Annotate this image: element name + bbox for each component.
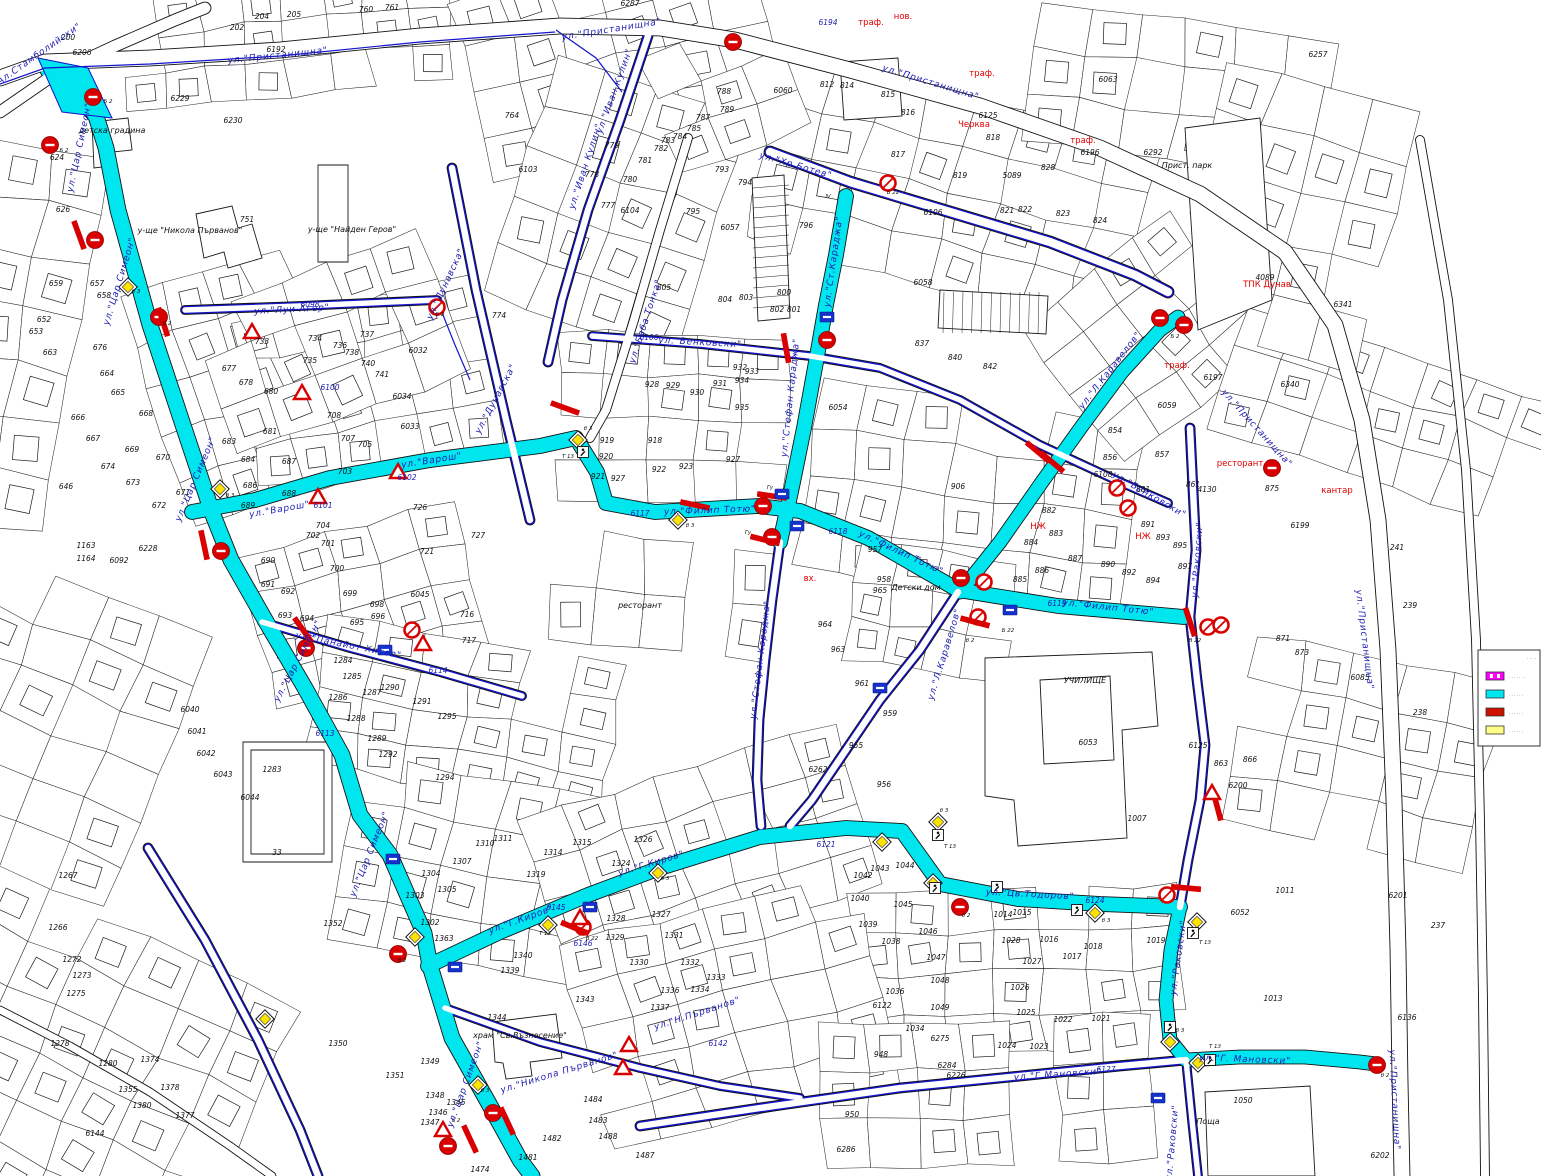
parcel-number-label: 678 [239,378,254,387]
parcel-number-label: 1337 [650,1003,669,1012]
parcel-number-label: 787 [696,113,711,122]
parcel-number-label: 886 [1035,566,1050,575]
legend-item-label: · · · · · · [1509,729,1523,734]
building-outline [1205,1086,1315,1176]
building-outline [857,629,877,649]
red-note-label: Черква [958,120,990,130]
parcel-number-label: 1333 [706,973,725,982]
building-outline [1352,716,1379,742]
building-outline [956,511,979,534]
parcel-number-label: 933 [745,367,760,376]
parcel-number-label: 659 [49,279,64,288]
parcel-number-label: 804 [718,295,733,304]
parcel-number-label: 927 [611,474,626,483]
parcel-number-label: 6125 [978,111,997,120]
building-outline [911,904,934,924]
parcel-number-label: 779 [605,141,620,150]
parcel-number-label: 1332 [680,958,699,967]
parcel-number-label: 1304 [421,869,440,878]
parcel-number-label: 6144 [85,1129,104,1138]
building-outline [1103,23,1126,45]
parcel-number-label: 1280 [98,1059,117,1068]
parcel-outline [590,588,645,650]
parcel-number-label: 793 [715,165,730,174]
parcel-number-label: 667 [86,434,101,443]
building-outline [860,594,881,615]
parcel-number-label: 664 [100,369,115,378]
parcel-number-label: 684 [241,455,256,464]
parcel-number-label: 1307 [452,857,471,866]
parcel-number-label: 6092 [109,556,128,565]
parcel-number-label: 1278 [50,1039,69,1048]
stop-sign-icon [725,34,742,51]
parcel-number-label: 703 [338,467,353,476]
stop-sign-icon [755,498,772,515]
parcel-number-label: 202 [230,23,245,32]
building-outline [730,953,756,976]
parcel-number-label: 6125 [1188,741,1207,750]
parcel-number-label: 760 [359,5,374,14]
sign-code-label: Б 2 [59,148,69,154]
parcel-number-label: 1021 [1091,1014,1110,1023]
ref-number-label: 6194 [818,18,837,27]
parcel-number-label: 692 [281,587,296,596]
parcel-number-label: 673 [126,478,141,487]
sign-code-label: Гу [745,530,752,536]
parcel-number-label: 652 [37,315,52,324]
parcel-number-label: 1294 [435,773,454,782]
parcel-number-label: 780 [623,175,638,184]
parcel-number-label: 928 [645,380,660,389]
parcel-number-label: 717 [462,636,477,645]
parcel-number-label: 1047 [926,953,945,962]
parcel-number-label: 895 [1173,541,1188,550]
parcel-number-label: 961 [855,679,869,688]
parcel-number-label: 6041 [187,727,206,736]
red-note-label: нов. [894,12,912,22]
parcel-number-label: 1343 [575,995,594,1004]
parcel-number-label: 815 [881,90,896,99]
building-outline [575,948,601,971]
parcel-number-label: 686 [243,481,258,490]
parcel-number-label: 800 [777,288,792,297]
ref-number-label: 6102 [397,473,416,482]
no-entry-sign-icon [977,575,992,590]
parcel-number-label: 6044 [240,793,259,802]
parcel-number-label: 6054 [828,403,847,412]
parcel-number-label: 816 [901,108,916,117]
parcel-number-label: 1326 [633,835,652,844]
sign-code-label: Т 13 [539,931,552,937]
crossing-sign-icon [933,830,944,841]
building-outline [1304,705,1329,729]
parcel-number-label: 929 [666,381,681,390]
parcel-number-label: 1017 [1062,952,1081,961]
parcel-number-label: 796 [799,221,814,230]
parcel-number-label: 241 [1390,543,1404,552]
parcel-number-label: 777 [601,201,616,210]
parcel-number-label: 818 [986,133,1001,142]
city-cadastral-map: 2006206202204205619262296230751624626659… [0,0,1541,1176]
parcel-number-label: 1311 [493,834,512,843]
sign-code-label: б 3 [132,289,141,295]
parcel-number-label: 1164 [76,554,95,563]
info-sign-icon [583,902,597,912]
parcel-number-label: 955 [849,741,864,750]
building-outline [259,73,278,91]
parcel-number-label: 204 [255,12,270,21]
parcel-number-label: 738 [345,348,360,357]
parcel-number-label: 883 [1049,529,1064,538]
parcel-number-label: 921 [591,472,605,481]
parcel-number-label: 922 [652,465,667,474]
parcel-number-label: 837 [915,339,930,348]
parcel-number-label: 866 [1243,755,1258,764]
parcel-number-label: 965 [873,586,888,595]
building-outline [1009,1021,1033,1043]
parcel-outline [204,62,248,104]
building-outline [1067,1028,1091,1052]
stop-sign-icon [485,1105,502,1122]
ref-number-label: 6101 [313,501,332,510]
parcel-number-label: 734 [308,334,323,343]
parcel-number-label: 956 [877,780,892,789]
poi-label: Поща [1196,1117,1219,1126]
parcel-number-label: 1048 [930,976,949,985]
poi-label: храм "Св.Възнесение" [472,1031,567,1040]
building-outline [868,448,890,470]
parcel-number-label: 1043 [870,864,889,873]
building-outline [1052,473,1076,497]
parcel-number-label: 1348 [425,1091,444,1100]
red-note-label: НЖ [1030,522,1046,532]
red-note-label: трaф. [969,69,995,79]
legend-swatch [1486,708,1504,716]
building-outline [1068,1076,1090,1098]
parcel-number-label: 1045 [893,900,912,909]
parcel-outline [738,379,791,425]
parcel-number-label: 1319 [526,870,545,879]
parcel-number-label: 726 [413,503,428,512]
sign-code-label: Б 2 [103,99,113,105]
parcel-number-label: 687 [282,457,297,466]
poi-label: Прист. парк [1162,161,1213,170]
parcel-number-label: 695 [350,618,365,627]
parcel-number-label: 923 [679,462,694,471]
parcel-number-label: 6197 [1203,373,1222,382]
parcel-number-label: 6103 [518,165,537,174]
parcel-number-label: 6262 [808,765,827,774]
parcel-outline [891,487,949,545]
parcel-number-label: 931 [713,379,727,388]
parcel-number-label: 1024 [997,1041,1016,1050]
building-outline [1113,1023,1137,1048]
parcel-number-label: 727 [471,531,486,540]
parcel-number-label: 934 [735,376,750,385]
parcel-number-label: 1039 [858,920,877,929]
poi-label: ресторант [617,601,662,610]
parcel-number-label: 698 [370,600,385,609]
parcel-number-label: 670 [156,453,171,462]
parcel-number-label: 688 [282,489,297,498]
parcel-number-label: 6122 [872,1001,891,1010]
building-outline [624,936,649,958]
parcel-number-label: 1007 [1127,814,1146,823]
parcel-number-label: 6043 [213,770,232,779]
parcel-number-label: 721 [420,547,434,556]
parcel-number-label: 626 [56,205,71,214]
parcel-number-label: 6284 [937,1061,956,1070]
parcel-number-label: 906 [951,482,966,491]
parcel-number-label: 1286 [328,693,347,702]
building-outline [418,780,443,804]
parcel-number-label: 873 [1295,648,1310,657]
parcel-number-label: 741 [375,370,389,379]
building-outline [1315,660,1341,685]
cadastral-map-viewport: 2006206202204205619262296230751624626659… [0,0,1541,1176]
parcel-number-label: 863 [1214,759,1229,768]
building-outline [9,156,38,185]
parcel-number-label: 674 [101,462,116,471]
parcel-number-label: 696 [371,612,386,621]
sign-code-label: б 3 [226,493,235,499]
parcel-number-label: 6104 [620,206,639,215]
parcel-number-label: 963 [831,645,846,654]
parcel-number-label: 885 [1013,575,1028,584]
parcel-number-label: 6292 [1143,148,1162,157]
stop-sign-icon [87,232,104,249]
parcel-number-label: 1380 [132,1101,151,1110]
parcel-number-label: 1044 [895,861,914,870]
parcel-number-label: 646 [59,482,74,491]
parcel-number-label: 1026 [1010,983,1029,992]
parcel-number-label: 1481 [518,1153,537,1162]
legend: · · · ·· · · · · · ·· · · · · ·· · · · ·… [1478,650,1540,746]
parcel-outline [1037,967,1091,1015]
building-outline [0,315,8,341]
parcel-number-label: 950 [845,1110,860,1119]
parcel-number-label: 788 [717,87,732,96]
building-outline [341,537,363,558]
parcel-number-label: 1275 [66,989,85,998]
stop-sign-icon [1176,317,1193,334]
parcel-number-label: 666 [71,413,86,422]
ref-number-label: 6121 [816,840,835,849]
info-sign-icon [386,854,400,864]
parcel-number-label: 6060 [773,86,792,95]
parcel-number-label: 6286 [836,1145,855,1154]
parcel-number-label: 1022 [1053,1015,1072,1024]
building-outline [561,602,581,627]
parcel-number-label: 893 [1156,533,1171,542]
info-sign-icon [1003,605,1017,615]
parcel-number-label: 1036 [885,987,904,996]
parcel-number-label: 927 [726,455,741,464]
red-note-label: вх. [804,574,817,584]
parcel-number-label: 821 [1000,206,1014,215]
parcel-number-label: 6040 [180,705,199,714]
building-outline [517,217,543,243]
sign-code-label: б 3 [940,808,949,814]
crossing-sign-icon [1165,1022,1176,1033]
sign-code-label: Б 22 [887,190,900,196]
parcel-number-label: 1329 [605,933,624,942]
parcel-number-label: 6340 [1280,380,1299,389]
parcel-outline [886,585,936,632]
parcel-number-label: 781 [638,156,652,165]
parcel-number-label: 1482 [542,1134,561,1143]
parcel-number-label: 1040 [850,894,869,903]
parcel-number-label: 1163 [76,541,95,550]
parcel-number-label: 890 [1101,560,1116,569]
parcel-number-label: 1377 [175,1111,194,1120]
parcel-number-label: 948 [874,1050,889,1059]
parcel-number-label: 6058 [913,278,932,287]
parcel-number-label: 4130 [1197,485,1216,494]
parcel-number-label: 1028 [1001,936,1020,945]
parcel-number-label: 1273 [72,971,91,980]
parcel-number-label: 1288 [346,714,365,723]
parcel-number-label: 764 [505,111,520,120]
parcel-number-label: 1334 [690,985,709,994]
parcel-number-label: 959 [883,709,898,718]
building-outline [664,345,685,365]
building-outline [5,485,34,514]
parcel-number-label: 238 [1413,708,1428,717]
building-outline [752,175,790,321]
parcel-number-label: 683 [222,437,237,446]
parcel-number-label: 824 [1093,216,1108,225]
parcel-number-label: 694 [300,614,315,623]
red-note-label: трaф. [858,18,884,28]
info-sign-icon [873,683,887,693]
sign-code-label: В 22 [586,936,599,942]
parcel-number-label: 716 [460,610,475,619]
parcel-number-label: 803 [739,293,754,302]
info-sign-icon [775,489,789,499]
parcel-number-label: 892 [1122,568,1137,577]
legend-swatch [1486,726,1504,734]
parcel-number-label: 1305 [437,885,456,894]
parcel-number-label: 6034 [392,392,411,401]
parcel-number-label: 677 [222,364,237,373]
sign-code-label: б 3 [661,876,670,882]
building-outline [745,565,765,590]
crossing-sign-icon [578,447,589,458]
parcel-number-label: 1487 [635,1151,654,1160]
sign-code-label: Т 13 [1209,1044,1222,1050]
red-note-label: кантар [1321,486,1352,496]
no-entry-sign-icon [1160,888,1175,903]
crossing-sign-icon [1188,928,1199,939]
parcel-number-label: 785 [687,124,702,133]
sign-code-label: б 2 [962,913,971,919]
building-outline [959,943,981,962]
sign-code-label: б 3 [481,1088,490,1094]
parcel-number-label: 653 [29,327,44,336]
building-outline [570,746,595,766]
parcel-number-label: 1374 [140,1055,159,1064]
parcel-number-label: 1339 [500,966,519,975]
building-outline [425,516,447,537]
parcel-number-label: 894 [1146,576,1161,585]
poi-label: у-ще "Найден Геров" [307,225,396,234]
parcel-number-label: 665 [111,388,126,397]
sign-code-label: Т 13 [562,454,575,460]
parcel-number-label: 699 [343,589,358,598]
building-outline [569,342,592,363]
parcel-number-label: 919 [600,436,615,445]
parcel-number-label: 1014 [993,910,1012,919]
parcel-number-label: 1285 [342,672,361,681]
parcel-number-label: 6228 [138,544,157,553]
parcel-number-label: 6199 [1290,521,1309,530]
parcel-number-label: 6202 [1370,1151,1389,1160]
parcel-number-label: 6045 [410,590,429,599]
sign-code-label: б 2 [398,958,407,964]
parcel-number-label: 1038 [881,937,900,946]
parcel-number-label: 819 [953,171,968,180]
parcel-number-label: 795 [686,207,701,216]
poi-label: у-ще "Никола Първанов" [137,226,243,235]
parcel-number-label: 761 [385,3,399,12]
parcel-number-label: 1295 [437,712,456,721]
building-outline [1375,409,1400,433]
stop-sign-icon [213,543,230,560]
parcel-number-label: 708 [327,411,342,420]
parcel-number-label: 6230 [223,116,242,125]
sign-code-label: Б 2 [1170,334,1180,340]
building-outline [1185,118,1272,330]
parcel-number-label: 1034 [905,1024,924,1033]
parcel-outline [943,969,994,1017]
legend-swatch [1486,672,1504,680]
parcel-number-label: 1046 [918,927,937,936]
building-outline [1101,979,1125,1001]
parcel-number-label: 1042 [853,871,872,880]
parcel-number-label: 789 [720,105,735,114]
parcel-outline [638,537,693,599]
sign-code-label: Т 13 [1199,940,1212,946]
parcel-number-label: 700 [330,564,345,573]
sign-code-label: б 2 [966,638,975,644]
parcel-number-label: 1351 [385,1071,404,1080]
parcel-number-label: 930 [690,388,705,397]
parcel-number-label: 1328 [606,914,625,923]
parcel-number-label: 1291 [412,697,431,706]
parcel-number-label: 1266 [48,923,67,932]
ref-number-label: 6124 [1085,896,1104,905]
stop-sign-icon [440,1138,457,1155]
sign-code-label: б 3 [584,426,593,432]
parcel-number-label: 801 [787,305,801,314]
building-outline [1040,676,1114,764]
parcel-outline [867,1116,922,1171]
parcel-number-label: 1018 [1083,942,1102,951]
parcel-number-label: 1011 [1275,886,1294,895]
stop-sign-icon [1369,1057,1386,1074]
ref-number-label: 6100 [320,383,339,392]
building-outline [938,290,1048,334]
building-outline [306,447,327,468]
red-note-label: ресторант [1217,459,1264,469]
stop-sign-icon [819,332,836,349]
parcel-number-label: 701 [321,539,335,548]
parcel-number-label: 1272 [62,955,81,964]
parcel-number-label: 1303 [405,891,424,900]
ref-number-label: 6118 [828,527,847,536]
parcel-number-label: 1355 [118,1085,137,1094]
